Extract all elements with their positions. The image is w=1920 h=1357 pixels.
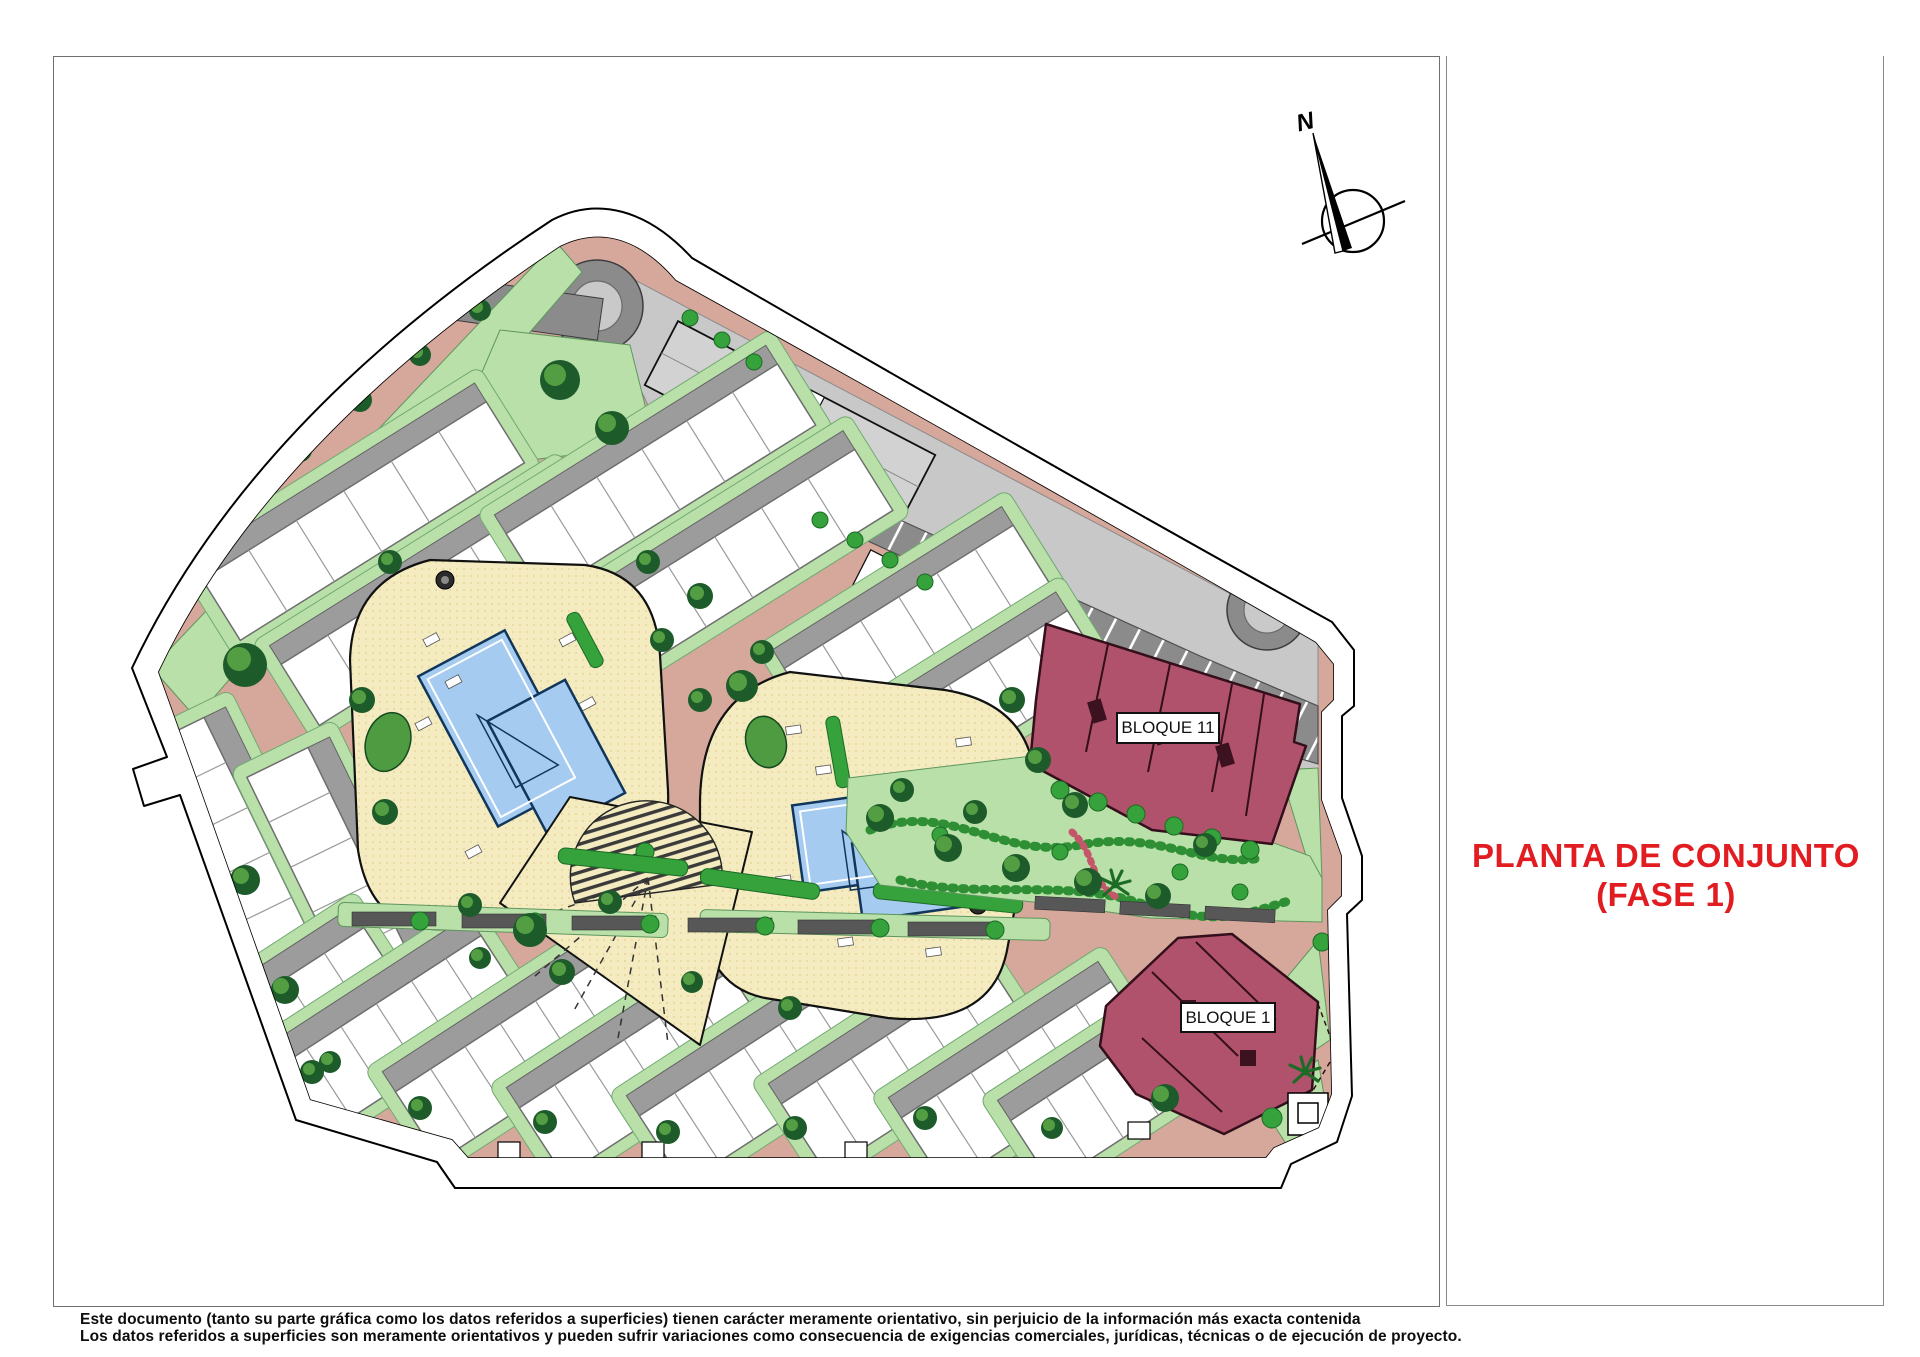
page-title-line1: PLANTA DE CONJUNTO (1448, 836, 1884, 875)
frame-divider-line (1446, 56, 1447, 1306)
drawing-frame (53, 56, 1440, 1307)
disclaimer-line2: Los datos referidos a superficies son me… (80, 1328, 1870, 1345)
bloque-1-label: BLOQUE 1 (1180, 1002, 1276, 1033)
frame-right-line (1883, 56, 1884, 1306)
title-block: PLANTA DE CONJUNTO (FASE 1) (1448, 836, 1884, 914)
page-title-line2: (FASE 1) (1448, 875, 1884, 914)
bloque-11-label: BLOQUE 11 (1116, 712, 1220, 744)
disclaimer-line1: Este documento (tanto su parte gráfica c… (80, 1311, 1870, 1328)
plan-sheet: N PLANTA DE CONJUNTO (FASE 1) BLOQUE 11 … (0, 0, 1920, 1357)
disclaimer: Este documento (tanto su parte gráfica c… (80, 1311, 1870, 1345)
frame-bottom-line (1446, 1305, 1884, 1306)
